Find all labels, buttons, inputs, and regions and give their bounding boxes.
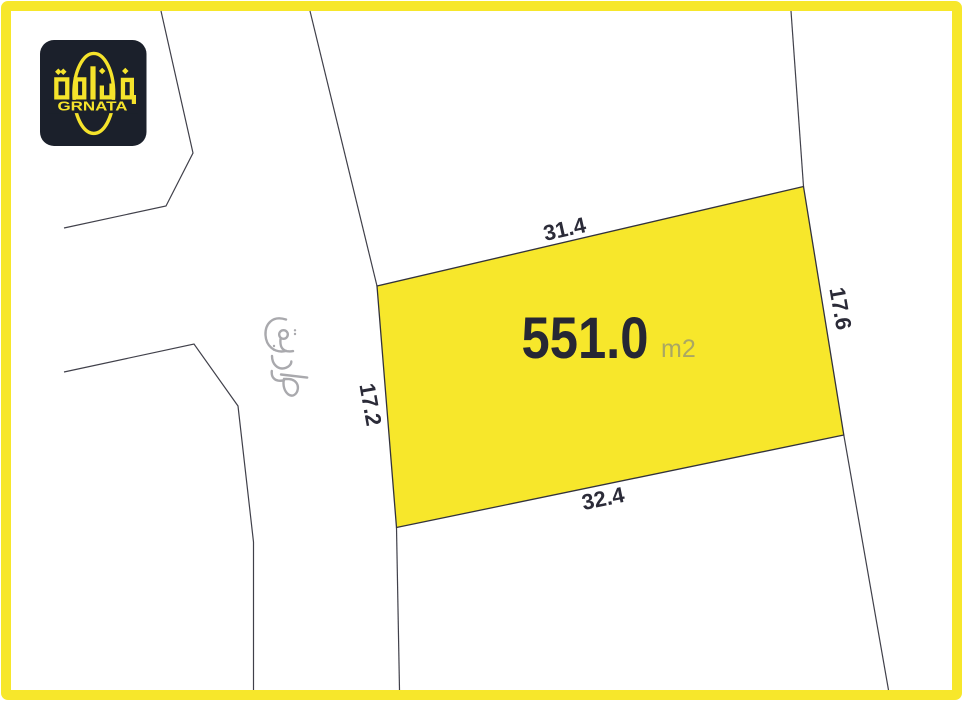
svg-text:GRNATA: GRNATA — [58, 98, 128, 113]
svg-text:m2: m2 — [661, 335, 696, 363]
svg-text:551.0: 551.0 — [522, 306, 649, 371]
